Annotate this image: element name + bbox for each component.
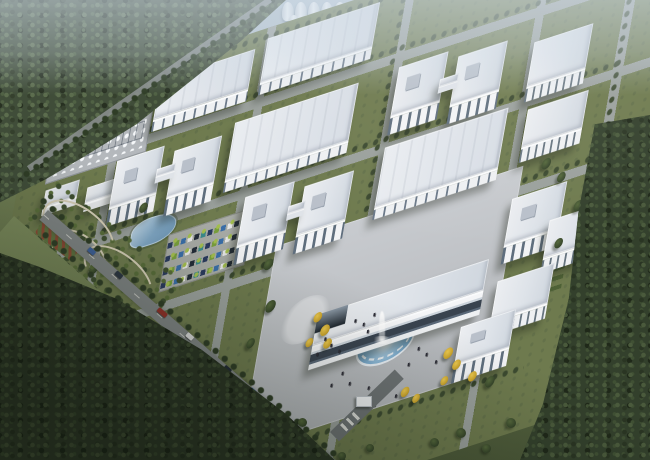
- vignette: [0, 0, 650, 460]
- aerial-render: [0, 0, 650, 460]
